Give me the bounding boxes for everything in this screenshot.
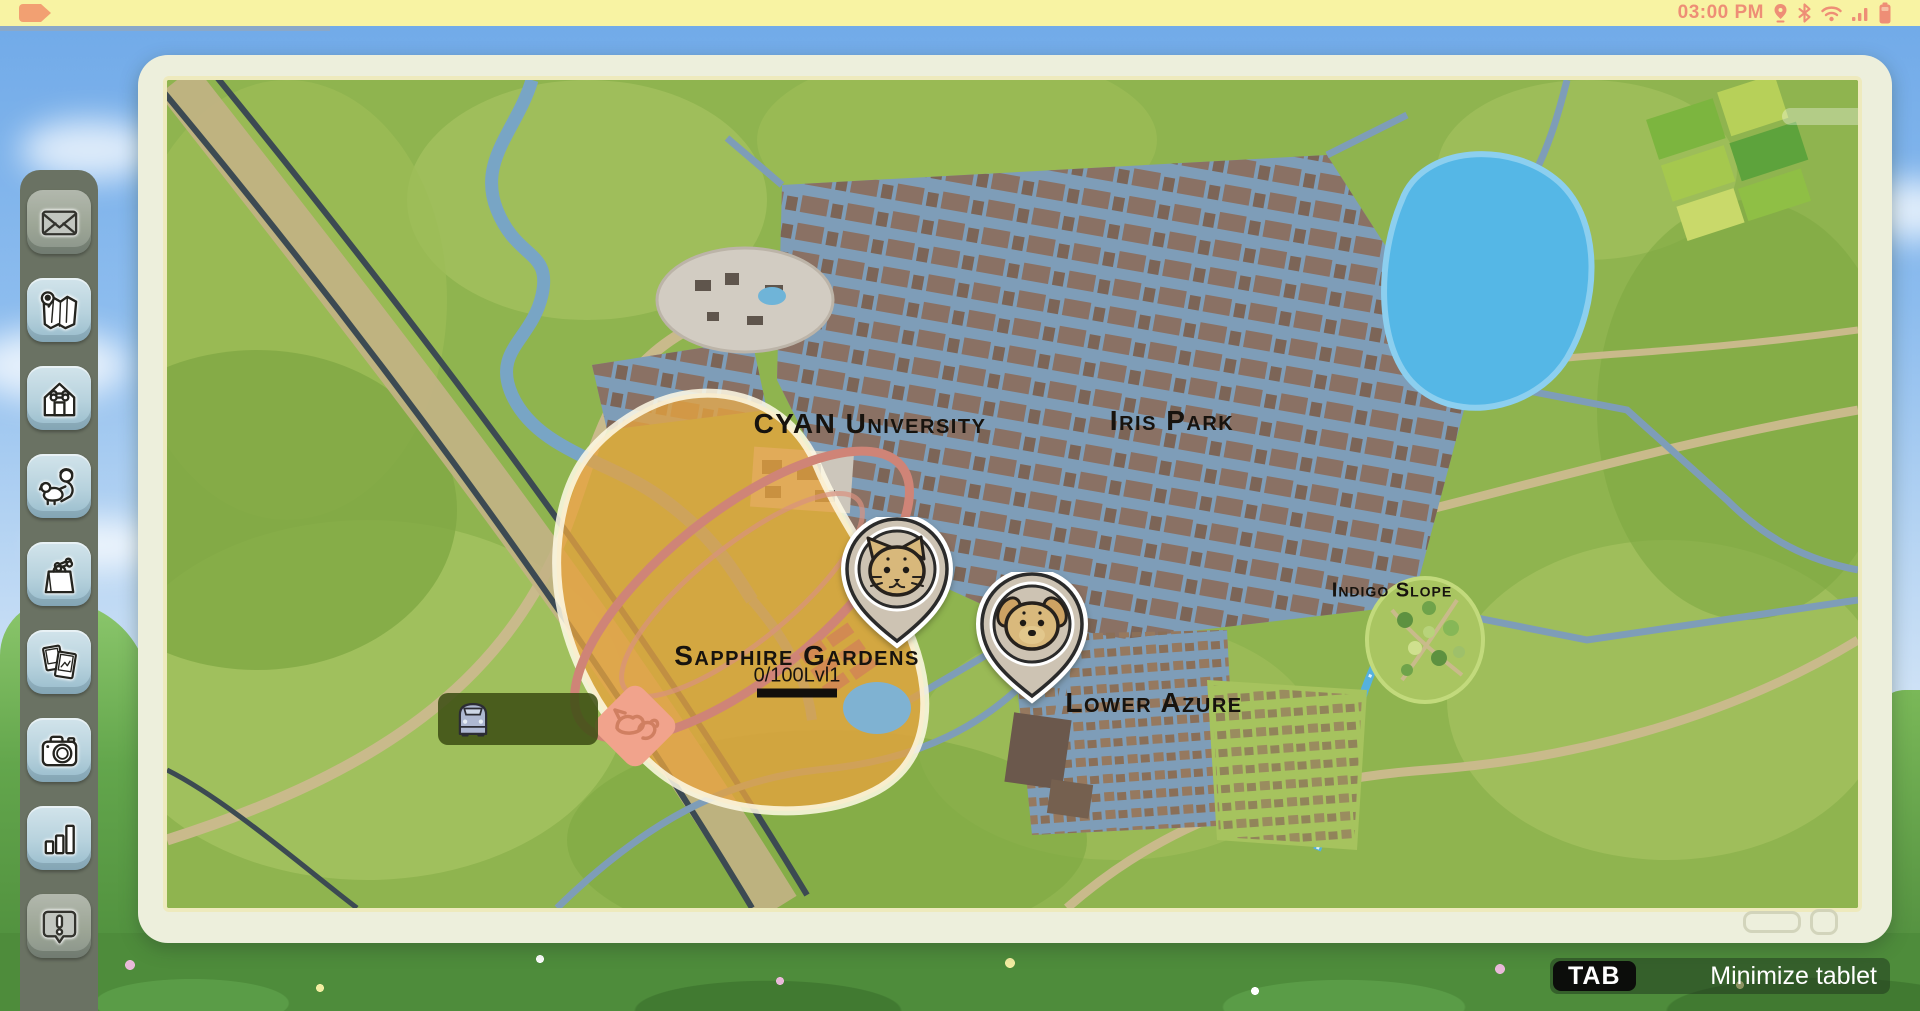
cat-face-icon	[868, 537, 924, 595]
map-artwork	[167, 80, 1858, 908]
location-icon	[1773, 3, 1788, 23]
minimize-hint-label: Minimize tablet	[1710, 962, 1887, 991]
district-progress-bar	[757, 689, 837, 698]
app-dock-sidebar	[20, 170, 98, 1011]
sidebar-item-home[interactable]	[27, 366, 91, 430]
cat-marker-pin[interactable]	[839, 517, 955, 654]
district-label-indigo-slope: Indigo Slope	[1332, 580, 1452, 603]
bar-chart-icon	[36, 815, 83, 862]
battery-icon	[1878, 2, 1892, 24]
map-scroll-indicator	[1782, 108, 1862, 125]
district-label-lower-azure: Lower Azure	[1065, 687, 1242, 719]
minimize-hint-bar: TAB Minimize tablet	[1550, 958, 1890, 994]
sidebar-item-camera[interactable]	[27, 718, 91, 782]
kid-with-dog-icon	[36, 463, 83, 510]
sidebar-item-alerts[interactable]	[27, 894, 91, 958]
frame-embossed-button	[1810, 909, 1838, 935]
sidebar-item-stats[interactable]	[27, 806, 91, 870]
vehicle-travel-button[interactable]	[438, 693, 598, 745]
dog-marker-pin[interactable]	[974, 572, 1090, 709]
sidebar-item-shop[interactable]	[27, 542, 91, 606]
signal-icon	[1851, 4, 1869, 22]
district-progress-sapphire-gardens: 0/100Lvl1	[754, 665, 841, 688]
car-icon	[452, 699, 494, 739]
sidebar-item-mail[interactable]	[27, 190, 91, 254]
frame-embossed-button	[1743, 911, 1801, 933]
notification-tag-icon	[18, 3, 52, 23]
district-label-cyan-university: CYAN University	[754, 408, 987, 440]
doghouse-icon	[36, 375, 83, 422]
map-icon	[36, 287, 83, 334]
sidebar-item-map[interactable]	[27, 278, 91, 342]
clock-time: 03:00 PM	[1678, 2, 1764, 24]
shopping-bag-icon	[36, 551, 83, 598]
tablet-window: CYAN University Iris Park Sapphire Garde…	[138, 55, 1892, 943]
sidebar-item-photos[interactable]	[27, 630, 91, 694]
district-label-iris-park: Iris Park	[1110, 405, 1234, 437]
alert-bubble-icon	[36, 903, 83, 950]
envelope-icon	[36, 199, 83, 246]
bluetooth-icon	[1797, 3, 1812, 23]
city-map[interactable]: CYAN University Iris Park Sapphire Garde…	[163, 76, 1862, 912]
status-bar: 03:00 PM	[0, 0, 1920, 26]
camera-icon	[36, 727, 83, 774]
background-horizon	[0, 26, 330, 31]
sidebar-item-play[interactable]	[27, 454, 91, 518]
tab-keycap: TAB	[1553, 961, 1636, 991]
wifi-icon	[1821, 4, 1842, 22]
photo-cards-icon	[36, 639, 83, 686]
